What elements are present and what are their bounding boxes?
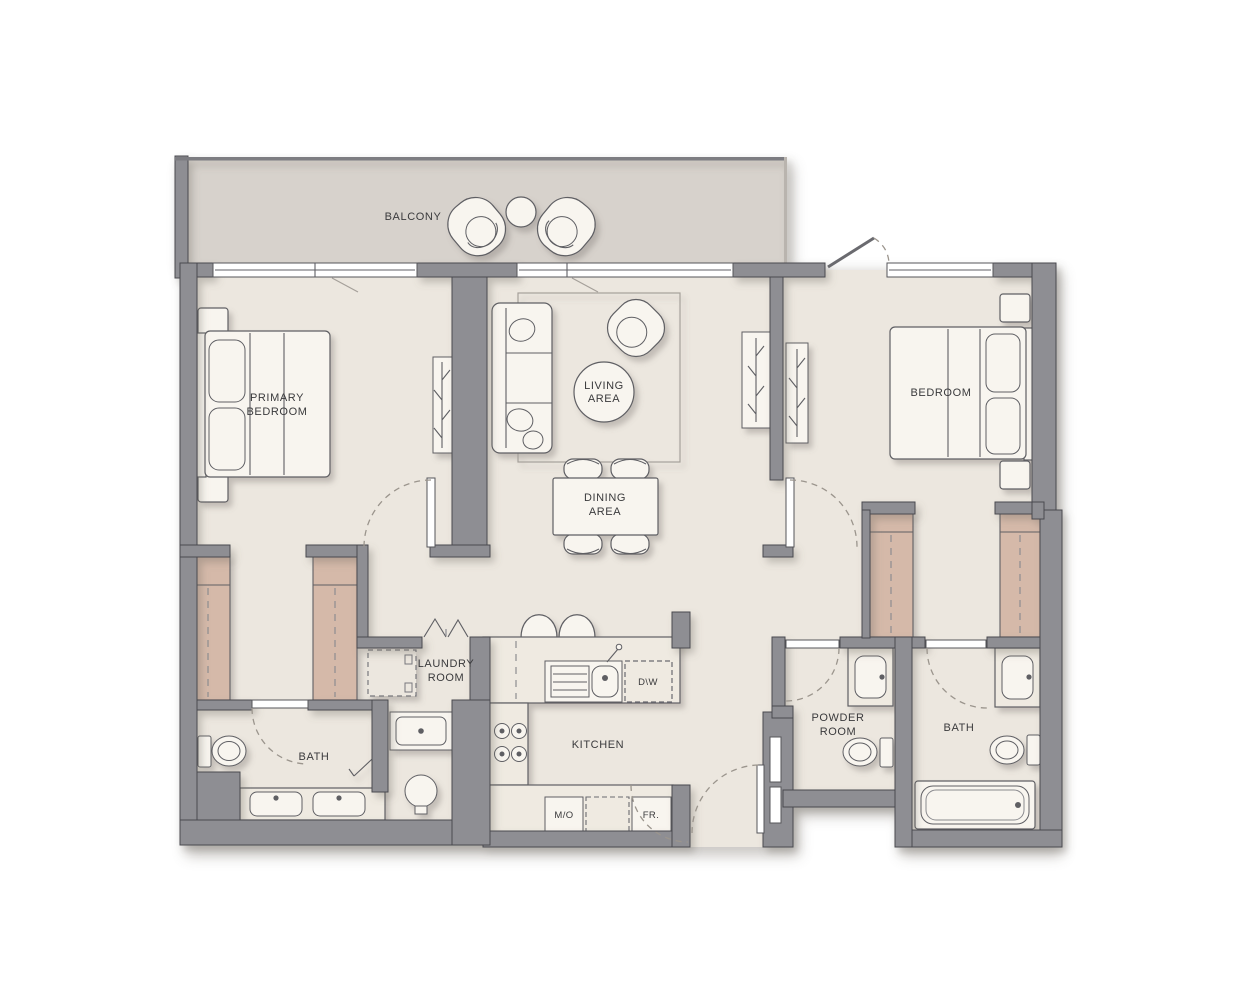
label-bath-primary: BATH [299, 751, 330, 763]
wall [180, 820, 460, 845]
wall [1032, 502, 1044, 519]
label-bedroom: BEDROOM [910, 387, 971, 399]
wall [987, 637, 1040, 648]
dining-chair [564, 534, 602, 554]
label-primary-bedroom: BEDROOM [246, 406, 307, 418]
label-balcony: BALCONY [385, 211, 442, 223]
label-living-area: AREA [588, 393, 620, 405]
label-laundry-room: ROOM [428, 672, 465, 684]
pillow [986, 398, 1020, 454]
wall [772, 706, 793, 718]
wall [357, 545, 368, 648]
wall [417, 263, 517, 277]
bathtub [915, 781, 1035, 829]
wall [452, 700, 490, 845]
wall [1032, 263, 1056, 517]
vanity-powder [848, 648, 893, 706]
plant [433, 357, 452, 453]
label-kitchen: KITCHEN [572, 739, 624, 751]
wall [470, 637, 490, 707]
wardrobe-bedroom-left [870, 512, 913, 637]
toilet-bath-secondary [990, 735, 1040, 765]
nightstand [198, 474, 228, 502]
dining-chair [611, 459, 649, 479]
wall [895, 830, 1062, 847]
wall [372, 700, 388, 792]
pillow [209, 340, 245, 402]
dining-chair [611, 534, 649, 554]
label-dining-area: AREA [589, 506, 621, 518]
wall [895, 637, 912, 847]
wall [1040, 510, 1062, 847]
shower [390, 712, 452, 750]
plant [786, 343, 808, 443]
balcony-side-table [506, 197, 536, 227]
label-dining-area: DINING [584, 492, 626, 504]
wall [733, 263, 825, 277]
wall [840, 637, 895, 648]
vanity-bath-primary [240, 788, 385, 820]
floor-plan-page: BALCONY PRIMARY BEDROOM LIVING AREA DINI… [0, 0, 1249, 999]
wall [672, 785, 690, 847]
label-microwave: M/O [554, 810, 573, 821]
wall [197, 700, 252, 710]
shaft-niche [770, 737, 781, 782]
wardrobe-bedroom-right [1000, 512, 1040, 637]
nightstand [1000, 461, 1030, 489]
balcony-edge [784, 157, 787, 265]
wall [783, 790, 895, 807]
dining-chair [564, 459, 602, 479]
sofa [492, 303, 552, 453]
vanity-bath-secondary [995, 648, 1040, 707]
label-fridge: FR. [643, 810, 660, 821]
shaft-niche [770, 787, 781, 823]
wardrobe-primary-right [313, 555, 357, 700]
label-dishwasher: D\W [638, 677, 658, 688]
label-bath-secondary: BATH [944, 722, 975, 734]
door-balcony-bedroom [828, 238, 889, 267]
wall [772, 637, 785, 713]
label-laundry-room: LAUNDRY [418, 658, 475, 670]
kitchen-cabinet [586, 797, 629, 832]
wall [175, 156, 188, 278]
wall [862, 510, 870, 638]
wall [308, 700, 372, 710]
label-living-area: LIVING [584, 380, 624, 392]
wall [912, 637, 925, 648]
floor-plan: BALCONY PRIMARY BEDROOM LIVING AREA DINI… [0, 0, 1249, 999]
pillow [209, 408, 245, 470]
washing-machine [368, 650, 416, 696]
nightstand [1000, 294, 1030, 322]
wall [452, 277, 487, 545]
wall [430, 545, 490, 557]
coffee-table [574, 362, 634, 422]
label-powder-room: POWDER [811, 712, 864, 724]
wall [197, 772, 240, 820]
wall [357, 637, 422, 648]
pillow [986, 334, 1020, 392]
label-powder-room: ROOM [820, 726, 857, 738]
toilet-bath-primary [198, 736, 246, 767]
plant [742, 332, 770, 428]
wall [180, 545, 230, 557]
label-primary-bedroom: PRIMARY [250, 392, 304, 404]
wall [672, 612, 690, 648]
wall [770, 277, 783, 480]
toilet-powder [843, 738, 893, 767]
balcony-railing [175, 157, 787, 161]
